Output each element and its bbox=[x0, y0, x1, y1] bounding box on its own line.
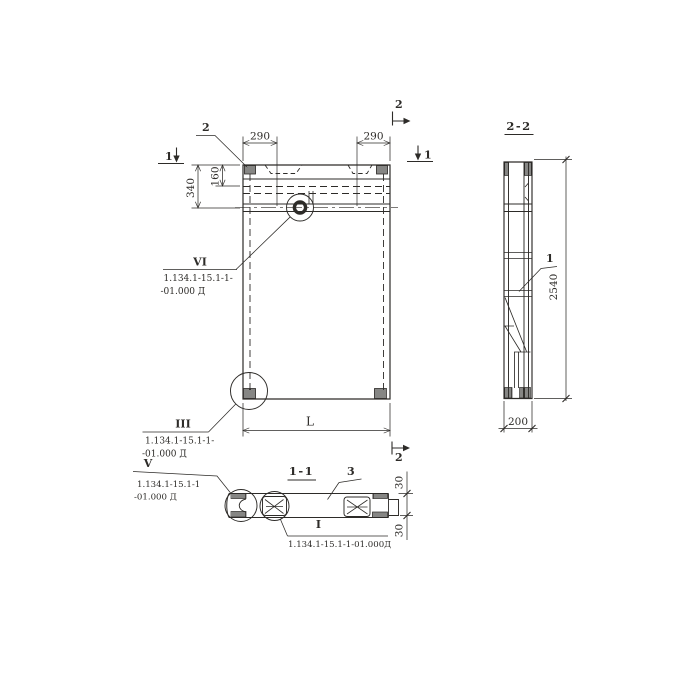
dim-2540-label: 2540 bbox=[548, 274, 560, 301]
section-1-1-linework bbox=[225, 480, 399, 522]
section-mark-2-bottom-arrowhead bbox=[403, 445, 410, 451]
section-2-2-linework bbox=[504, 135, 534, 399]
dim-30-bottom-label: 30 bbox=[394, 524, 406, 537]
callout-3-label: 3 bbox=[347, 465, 355, 478]
section-1-1-title: 1-1 bbox=[289, 464, 314, 478]
plan-recess-centerlines bbox=[277, 137, 357, 207]
detail-v-ref-line1: 1.134.1-15.1-1 bbox=[137, 480, 200, 490]
section-2-2-hatch-top-left bbox=[505, 163, 509, 176]
dim-340-label: 340 bbox=[185, 178, 197, 198]
section-mark-2-top-lines bbox=[393, 112, 405, 126]
detail-vi-numeral: VI bbox=[192, 256, 207, 269]
callout-1-label: 1 bbox=[546, 252, 554, 265]
bar-right-hatch-top bbox=[374, 494, 388, 499]
callout-2-leader bbox=[196, 136, 248, 168]
plan-hatch-top-left bbox=[245, 166, 256, 175]
section-mark-1-left-arrowhead bbox=[173, 156, 179, 163]
dim-length-label: L bbox=[306, 415, 314, 429]
section-mark-2-top-label: 2 bbox=[395, 98, 403, 111]
detail-vi-ref-line1: 1.134.1-15.1-1- bbox=[164, 274, 233, 284]
detail-i-numeral: I bbox=[316, 518, 321, 531]
detail-iii-numeral: III bbox=[175, 418, 190, 431]
ext-lines-length bbox=[243, 403, 390, 437]
joint-void-left-inner bbox=[265, 500, 284, 514]
section-2-2-hatch-bottom-right bbox=[520, 388, 531, 399]
callout-2-label: 2 bbox=[202, 121, 210, 134]
callout-2 bbox=[196, 136, 248, 168]
detail-i-leader bbox=[280, 519, 388, 536]
plan-hatch-bottom-right bbox=[375, 389, 387, 399]
section-2-2-title: 2-2 bbox=[506, 119, 531, 133]
dim-30-top-label: 30 bbox=[394, 476, 406, 489]
section-mark-1-right-label: 1 bbox=[424, 149, 432, 162]
dim-200-label: 200 bbox=[508, 416, 528, 428]
bar-right-tongue bbox=[389, 500, 399, 516]
plan-hatch-top-right bbox=[377, 166, 388, 175]
section-mark-1-right-arrowhead bbox=[415, 154, 421, 161]
panel-void-middle-inner bbox=[347, 500, 368, 514]
plan-recess-left-hidden bbox=[265, 165, 302, 174]
drawing-sheet: 290 290 340 160 L 1 1 2 2 2 VI 1.134.1-1… bbox=[0, 0, 700, 700]
detail-iii-ref-line1: 1.134.1-15.1-1- bbox=[145, 437, 214, 447]
detail-vi-ref-line2: -01.000 Д bbox=[161, 287, 206, 297]
detail-i-ref: 1.134.1-15.1-1-01.000Д bbox=[288, 540, 391, 550]
detail-vi-leader bbox=[163, 217, 290, 270]
plan-hatch-bottom-left bbox=[244, 389, 256, 399]
plan-hidden-lines bbox=[243, 174, 390, 393]
bar-right-hatch-bottom bbox=[373, 512, 388, 518]
section-2-2-hatch-top-right bbox=[525, 163, 532, 176]
section-mark-1-left-label: 1 bbox=[165, 150, 173, 163]
drawing-canvas: 290 290 340 160 L 1 1 2 2 2 VI 1.134.1-1… bbox=[0, 0, 700, 700]
section-2-2-hatch-bottom-left bbox=[505, 388, 513, 399]
dim-290-left-label: 290 bbox=[250, 131, 270, 143]
plan-outline bbox=[243, 165, 390, 399]
bar-left-inner-profile bbox=[239, 499, 246, 512]
detail-v-numeral: V bbox=[143, 457, 153, 470]
section-mark-2-bottom-label: 2 bbox=[395, 451, 403, 464]
dim-290-right-label: 290 bbox=[363, 131, 383, 143]
bar-left-hatch-bottom bbox=[231, 512, 246, 518]
plan-recess-right-hidden bbox=[348, 165, 372, 174]
callout-3-leader bbox=[328, 479, 362, 500]
bar-left-hatch-top bbox=[231, 494, 246, 499]
detail-v-ref-line2: -01.000 Д bbox=[134, 493, 177, 503]
dim-160-label: 160 bbox=[210, 166, 222, 186]
section-2-2-joint-jog bbox=[525, 183, 529, 201]
plan-view-linework bbox=[231, 137, 399, 410]
ext-lines-30 bbox=[399, 494, 414, 516]
section-mark-2-top-arrowhead bbox=[404, 118, 411, 124]
detail-callout-vi bbox=[163, 217, 290, 270]
